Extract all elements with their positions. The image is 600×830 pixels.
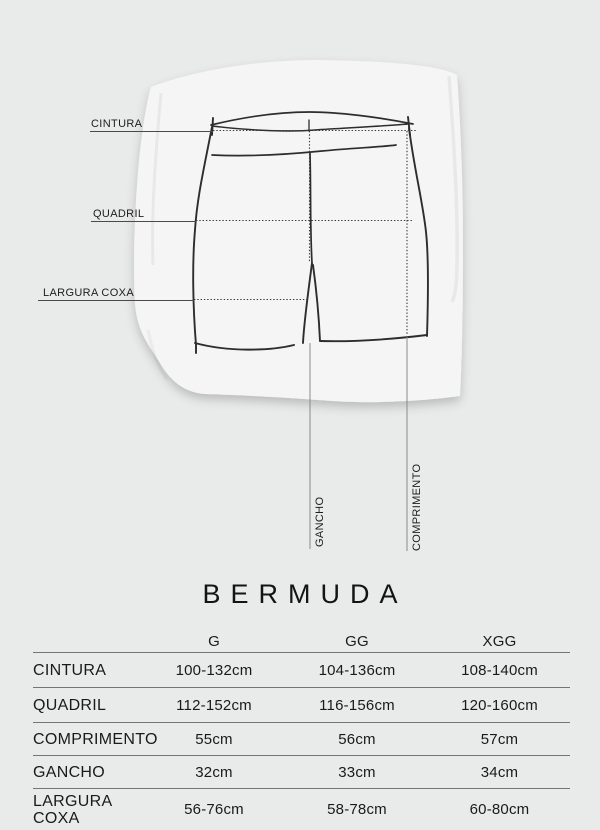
measure-row-label: GANCHO [33,764,143,781]
size-column-header-gg: GG [285,633,429,650]
quadril-measure-label: QUADRIL [93,208,144,220]
size-value-cell: 100-132cm [143,662,285,679]
gancho-measure-label: GANCHO [314,497,326,547]
size-column-header-g: G [143,633,285,650]
size-table-header-row: G GG XGG [33,630,570,653]
size-value-cell: 56cm [285,731,429,748]
size-value-cell: 120-160cm [429,697,570,714]
table-row-gancho: GANCHO 32cm 33cm 34cm [33,756,570,789]
table-row-comprimento: COMPRIMENTO 55cm 56cm 57cm [33,723,570,756]
size-value-cell: 55cm [143,731,285,748]
largura-coxa-measure-label: LARGURA COXA [43,287,134,299]
size-value-cell: 108-140cm [429,662,570,679]
table-row-cintura: CINTURA 100-132cm 104-136cm 108-140cm [33,653,570,688]
measure-row-label: COMPRIMENTO [33,731,143,748]
size-value-cell: 56-76cm [143,801,285,818]
size-value-cell: 34cm [429,764,570,781]
measure-row-label: QUADRIL [33,697,143,714]
cintura-measure-label: CINTURA [91,118,142,130]
shorts-technical-drawing [0,0,600,565]
size-value-cell: 58-78cm [285,801,429,818]
size-table: G GG XGG CINTURA 100-132cm 104-136cm 108… [33,630,570,830]
size-column-header-xgg: XGG [429,633,570,650]
size-guide-page: CINTURA QUADRIL LARGURA COXA GANCHO COMP… [0,0,600,830]
size-value-cell: 60-80cm [429,801,570,818]
size-value-cell: 33cm [285,764,429,781]
table-row-largura-coxa: LARGURA COXA 56-76cm 58-78cm 60-80cm [33,789,570,830]
size-value-cell: 116-156cm [285,697,429,714]
size-value-cell: 112-152cm [143,697,285,714]
paper-backdrop [134,60,463,402]
measure-row-label: CINTURA [33,662,143,679]
page-title: BERMUDA [0,582,600,606]
comprimento-measure-label: COMPRIMENTO [411,464,423,551]
table-row-quadril: QUADRIL 112-152cm 116-156cm 120-160cm [33,688,570,723]
size-value-cell: 57cm [429,731,570,748]
measure-row-label: LARGURA COXA [33,793,143,827]
size-value-cell: 104-136cm [285,662,429,679]
size-value-cell: 32cm [143,764,285,781]
